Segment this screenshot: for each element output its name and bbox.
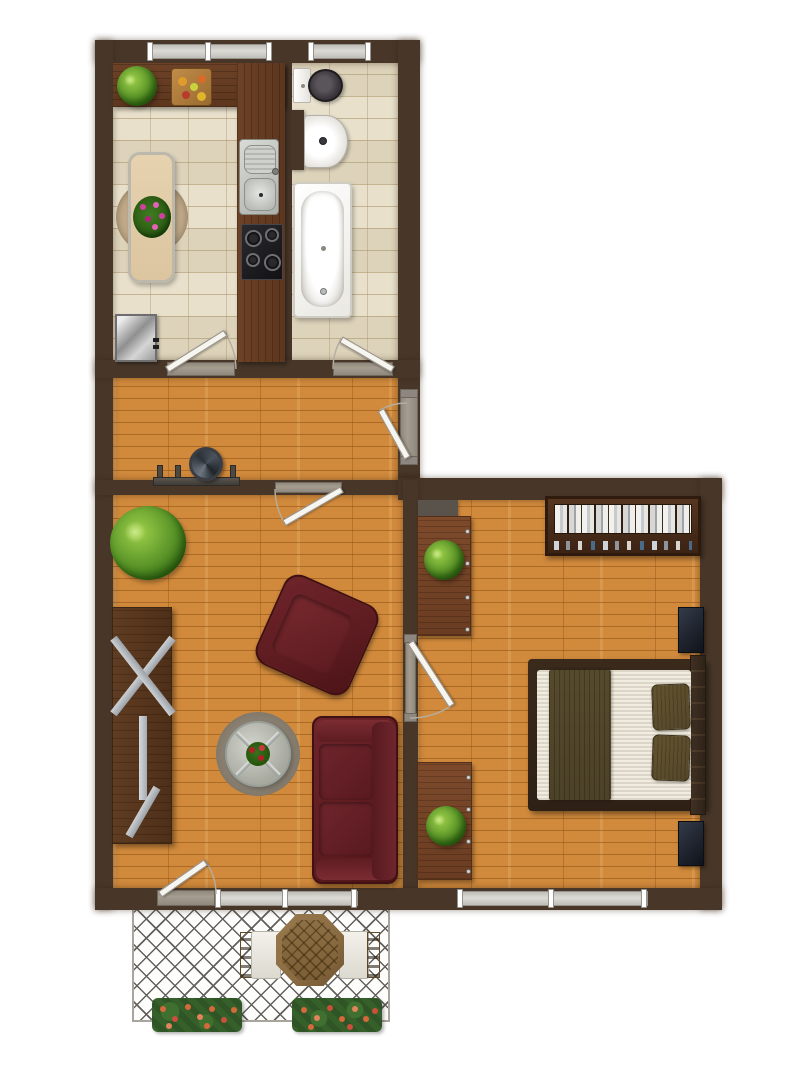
- bedroom-window-post: [548, 889, 554, 908]
- sink-faucet: [272, 168, 279, 175]
- dresser-plant-lower: [426, 806, 466, 846]
- flush-button: [301, 84, 305, 88]
- armchair-seat: [270, 592, 354, 676]
- bed-blanket: [549, 670, 611, 800]
- bedroom-window: [460, 891, 648, 906]
- refrigerator-handle: [153, 338, 159, 342]
- bloom: [231, 1007, 237, 1013]
- sofa-backrest: [372, 722, 396, 880]
- coat-hook: [157, 465, 163, 478]
- dresser-knob: [466, 807, 471, 812]
- wall-hallway-living: [95, 480, 420, 495]
- bed-headboard: [690, 655, 706, 815]
- fruit: [197, 92, 206, 101]
- bathtub-drain: [321, 246, 326, 251]
- bookshelf-books: [554, 504, 692, 534]
- living-room-window-post: [351, 889, 357, 908]
- dresser-knob: [466, 869, 471, 874]
- floor-plan-canvas: [0, 0, 810, 1080]
- kitchen-window-post: [147, 42, 153, 61]
- round-mirror: [189, 447, 223, 481]
- bloom: [339, 1016, 345, 1022]
- sink-basin: [244, 178, 276, 211]
- bloom: [185, 1004, 191, 1010]
- bloom: [204, 1023, 210, 1029]
- dresser-knob: [466, 775, 471, 780]
- bloom: [258, 755, 264, 761]
- balcony-table-top: [282, 920, 338, 980]
- bloom: [301, 1007, 307, 1013]
- bookshelf: [545, 496, 701, 556]
- coat-hook: [230, 465, 236, 478]
- bloom: [314, 1015, 320, 1021]
- refrigerator-handle: [153, 345, 159, 349]
- bloom: [363, 1016, 369, 1022]
- wash-basin: [304, 115, 348, 168]
- bed-pillow: [651, 683, 691, 730]
- kitchen-window: [150, 44, 272, 59]
- bloom: [347, 1024, 353, 1030]
- wall-left: [95, 40, 113, 910]
- dresser-knob: [465, 595, 470, 600]
- sofa-cushion: [319, 744, 373, 800]
- desk-leg: [139, 716, 147, 800]
- bloom: [209, 1006, 215, 1012]
- bloom: [221, 1017, 227, 1023]
- basin-faucet: [319, 137, 327, 145]
- dresser-knob: [465, 561, 470, 566]
- cutting-board: [171, 68, 212, 106]
- bloom: [327, 1005, 333, 1011]
- fruit: [178, 77, 187, 86]
- entrance-door-jamb: [400, 389, 418, 398]
- bloom: [352, 1006, 358, 1012]
- bloom: [160, 1006, 166, 1012]
- dresser-plant-upper: [424, 540, 464, 580]
- bathroom-window: [311, 44, 371, 59]
- bedroom-window-post: [457, 889, 463, 908]
- kitchen-window-post: [266, 42, 272, 61]
- flower-box-left: [152, 998, 242, 1032]
- living-room-window-post: [215, 889, 221, 908]
- fruit: [190, 83, 198, 91]
- stove: [241, 224, 283, 280]
- bathroom-window-post: [308, 42, 314, 61]
- kitchen-window-post: [205, 42, 211, 61]
- bedroom-door-jamb: [404, 713, 417, 722]
- stove-burner: [245, 230, 262, 247]
- stove-burner: [246, 253, 260, 267]
- bed-pillow: [651, 734, 691, 781]
- fruit: [198, 75, 206, 83]
- bloom: [140, 204, 146, 210]
- trestle-desk: [112, 607, 172, 844]
- dresser-knob: [465, 627, 470, 632]
- bloom: [152, 224, 158, 230]
- coffee-table-flowers: [246, 742, 270, 766]
- nightstand-top: [678, 607, 704, 653]
- living-room-plant: [110, 506, 186, 580]
- wall-kitchen-bathroom-divider: [284, 63, 292, 360]
- bathroom-partition-wall: [291, 110, 304, 170]
- toilet-bowl: [308, 69, 343, 102]
- bloom: [166, 1023, 172, 1029]
- sofa-cushion: [319, 802, 373, 856]
- bathtub: [293, 182, 352, 318]
- flower-centerpiece: [133, 196, 171, 238]
- bloom: [308, 1024, 314, 1030]
- bloom: [172, 1016, 178, 1022]
- bloom: [197, 1014, 203, 1020]
- bloom: [145, 216, 151, 222]
- coat-hook: [175, 465, 181, 478]
- fruit: [182, 91, 190, 99]
- flower-box-right: [292, 998, 382, 1032]
- sink-drain: [259, 193, 263, 197]
- bedroom-window-post: [641, 889, 647, 908]
- sofa: [312, 716, 398, 884]
- bloom: [372, 1008, 378, 1014]
- dresser-knob: [466, 839, 471, 844]
- nightstand-bottom: [678, 821, 704, 866]
- stove-burner: [265, 228, 279, 242]
- bloom: [159, 213, 165, 219]
- kitchen-sink-unit: [239, 139, 279, 215]
- living-room-window-post: [282, 889, 288, 908]
- bathroom-window-post: [365, 42, 371, 61]
- bloom: [153, 202, 159, 208]
- bookshelf-items: [554, 541, 692, 550]
- bloom: [259, 745, 265, 751]
- dresser-knob: [465, 529, 470, 534]
- bathtub-faucet: [320, 288, 327, 295]
- stove-burner: [264, 254, 281, 271]
- counter-plant: [117, 66, 157, 106]
- bloom: [249, 747, 255, 753]
- balcony-chair-right-back: [367, 932, 380, 978]
- refrigerator: [115, 314, 157, 362]
- living-room-window: [218, 891, 358, 906]
